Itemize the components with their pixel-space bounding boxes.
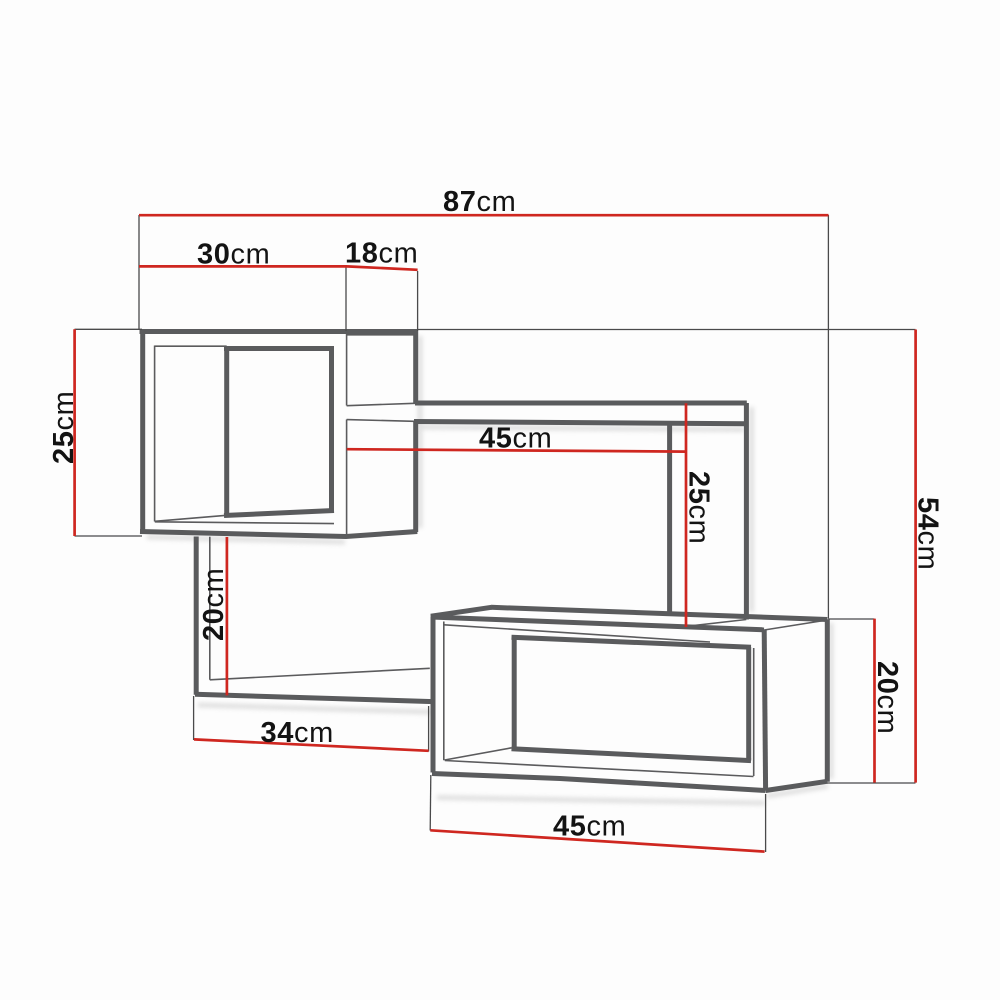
svg-text:45cm: 45cm <box>479 423 552 455</box>
svg-text:18cm: 18cm <box>345 238 418 270</box>
svg-text:20cm: 20cm <box>198 568 230 641</box>
svg-text:87cm: 87cm <box>443 186 516 218</box>
svg-text:25cm: 25cm <box>683 471 715 544</box>
svg-text:25cm: 25cm <box>48 391 80 464</box>
svg-text:30cm: 30cm <box>197 239 270 271</box>
svg-text:34cm: 34cm <box>261 717 334 749</box>
svg-text:54cm: 54cm <box>912 497 944 570</box>
svg-text:45cm: 45cm <box>553 811 626 843</box>
svg-text:20cm: 20cm <box>871 661 903 734</box>
